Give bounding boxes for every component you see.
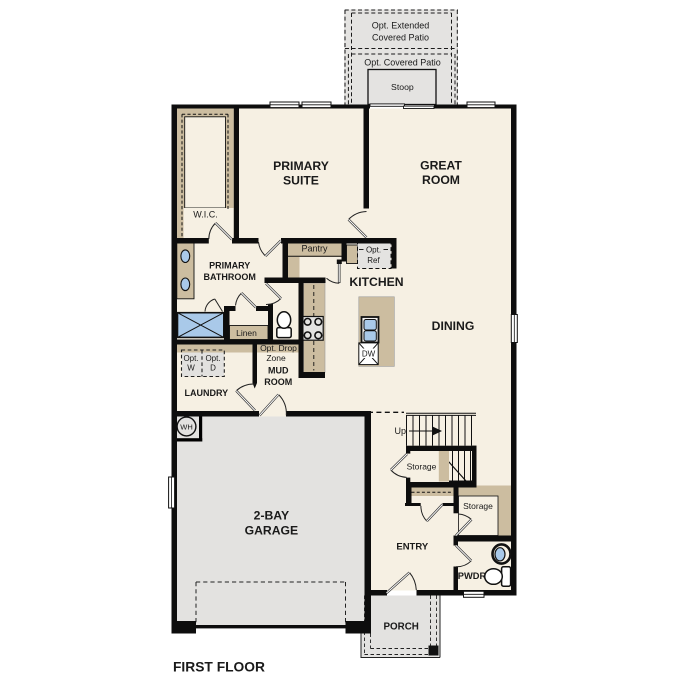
svg-text:D: D xyxy=(210,364,216,373)
svg-text:Storage: Storage xyxy=(463,501,493,511)
svg-text:MUD: MUD xyxy=(268,366,289,376)
svg-text:PRIMARY: PRIMARY xyxy=(209,260,250,270)
svg-text:Ref: Ref xyxy=(367,256,380,265)
svg-text:ROOM: ROOM xyxy=(422,173,460,187)
svg-text:DW: DW xyxy=(362,350,376,359)
svg-text:SUITE: SUITE xyxy=(283,173,319,187)
svg-text:Up: Up xyxy=(394,426,406,436)
svg-text:Pantry: Pantry xyxy=(301,244,328,254)
svg-text:Opt.: Opt. xyxy=(205,354,220,363)
svg-text:Opt.: Opt. xyxy=(366,246,381,255)
svg-text:GREAT: GREAT xyxy=(420,159,462,173)
svg-text:FIRST FLOOR: FIRST FLOOR xyxy=(173,660,265,675)
svg-text:PWDR: PWDR xyxy=(458,571,487,581)
svg-text:BATHROOM: BATHROOM xyxy=(204,272,256,282)
svg-text:Opt.: Opt. xyxy=(183,354,198,363)
svg-text:Zone: Zone xyxy=(266,353,286,363)
svg-text:Linen: Linen xyxy=(236,328,257,338)
svg-text:KITCHEN: KITCHEN xyxy=(349,275,403,289)
svg-text:GARAGE: GARAGE xyxy=(245,523,299,537)
svg-text:DINING: DINING xyxy=(432,319,475,333)
svg-text:Opt. Covered Patio: Opt. Covered Patio xyxy=(364,58,441,68)
svg-text:ENTRY: ENTRY xyxy=(396,542,429,553)
svg-text:Stoop: Stoop xyxy=(391,82,414,92)
svg-text:PORCH: PORCH xyxy=(384,622,419,633)
svg-text:Covered Patio: Covered Patio xyxy=(372,32,429,42)
svg-text:2-BAY: 2-BAY xyxy=(254,508,289,522)
svg-text:W: W xyxy=(187,364,195,373)
svg-text:Storage: Storage xyxy=(407,461,437,471)
svg-text:W.I.C.: W.I.C. xyxy=(193,210,218,220)
svg-text:LAUNDRY: LAUNDRY xyxy=(184,388,228,398)
svg-text:PRIMARY: PRIMARY xyxy=(273,159,329,173)
svg-text:WH: WH xyxy=(180,422,193,431)
svg-text:Opt. Extended: Opt. Extended xyxy=(372,21,430,31)
svg-text:ROOM: ROOM xyxy=(264,377,292,387)
